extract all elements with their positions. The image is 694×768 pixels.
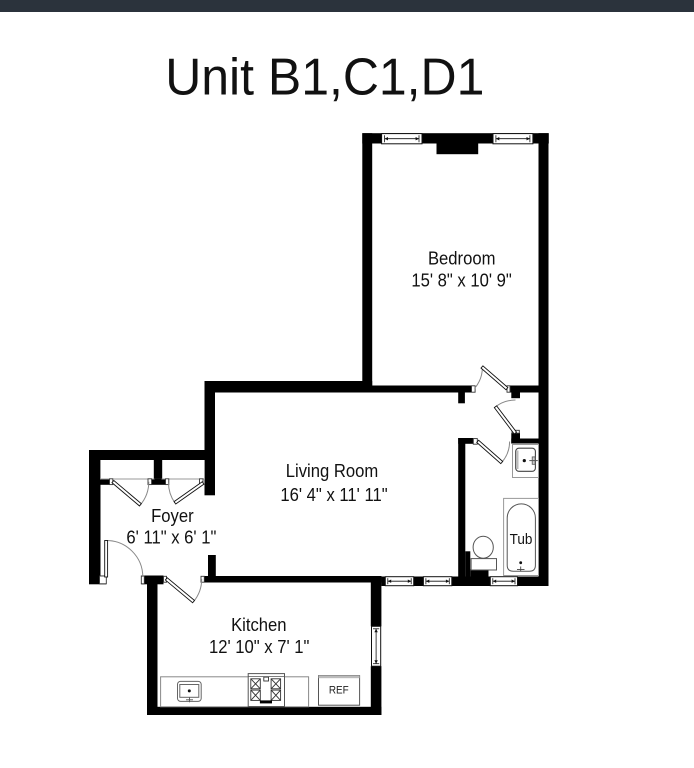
svg-text:Living Room: Living Room [286, 460, 378, 481]
svg-text:Kitchen: Kitchen [231, 614, 286, 635]
svg-text:REF: REF [329, 685, 349, 697]
svg-text:15' 8" x 10' 9": 15' 8" x 10' 9" [411, 270, 511, 291]
svg-text:12' 10" x 7' 1": 12' 10" x 7' 1" [209, 636, 309, 657]
svg-text:Bedroom: Bedroom [428, 248, 495, 269]
svg-text:Tub: Tub [510, 531, 533, 548]
svg-text:6' 11" x 6' 1": 6' 11" x 6' 1" [126, 527, 216, 548]
svg-text:Unit B1,C1,D1: Unit B1,C1,D1 [165, 48, 484, 106]
svg-text:Foyer: Foyer [151, 505, 194, 526]
svg-text:16' 4" x 11' 11": 16' 4" x 11' 11" [280, 484, 387, 505]
